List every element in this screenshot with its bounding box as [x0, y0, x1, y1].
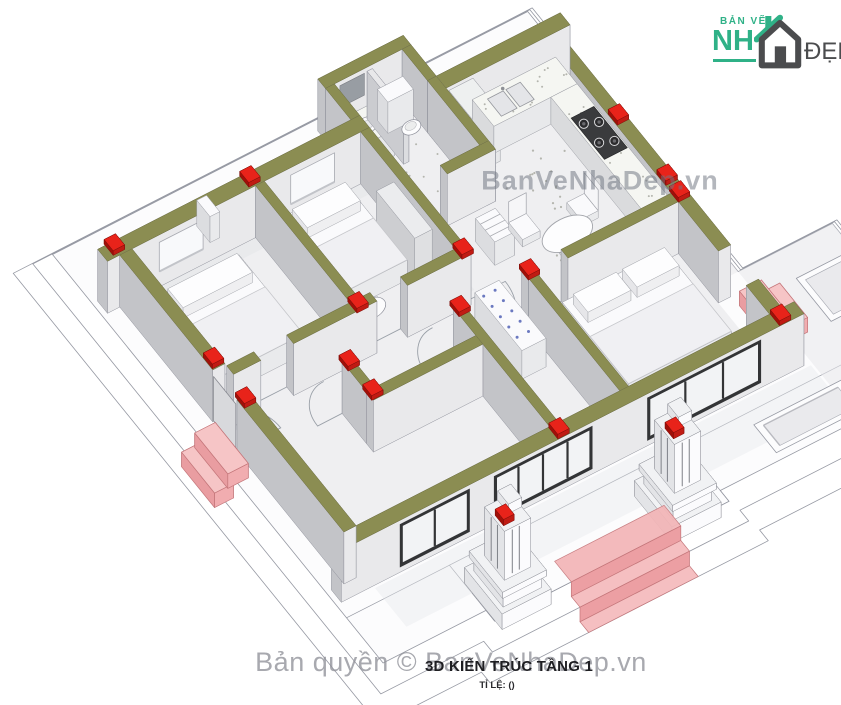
logo-house-icon — [754, 13, 806, 71]
scale-label: TỈ LỆ: () — [479, 680, 514, 691]
logo-big-text: NH — [712, 25, 754, 58]
drawing-title: 3D KIẾN TRÚC TẦNG 1 — [425, 658, 593, 675]
site-logo: BẢN VẼ NH ĐẸP — [710, 13, 840, 77]
logo-suffix-text: ĐẸP — [804, 38, 841, 66]
floor-plan-3d-view — [0, 0, 841, 705]
page: BanVeNhaDep.vn Bản quyền © BanVeNhaDep.v… — [0, 0, 841, 705]
logo-underline — [713, 59, 756, 62]
center-watermark: BanVeNhaDep.vn — [481, 166, 719, 197]
